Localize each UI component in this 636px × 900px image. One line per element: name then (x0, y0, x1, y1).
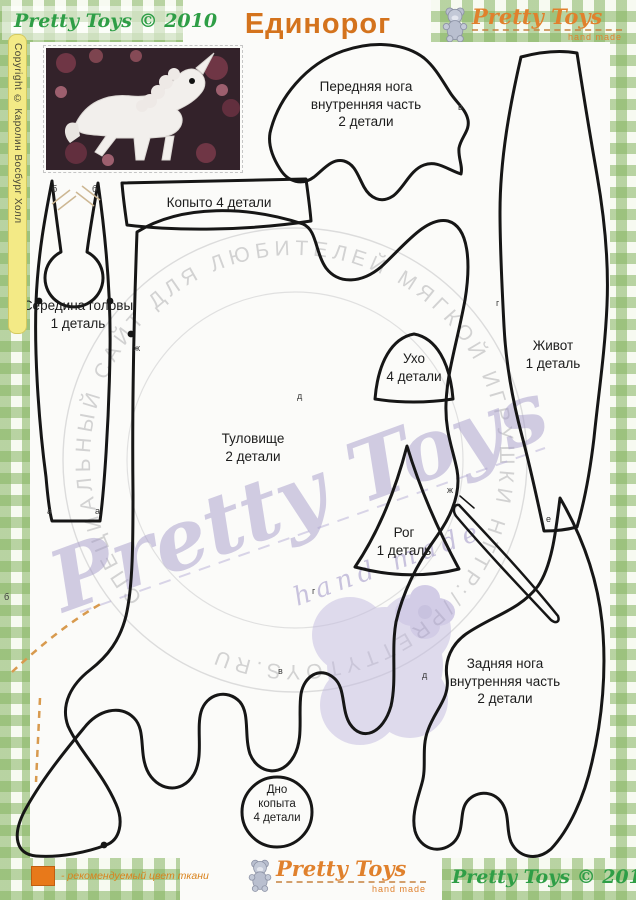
seam-letter: б (4, 592, 9, 602)
logo-bottom-center: Pretty Toys hand made (248, 858, 426, 894)
seam-letter: а (47, 506, 52, 516)
brand-dash-line (276, 881, 426, 883)
unicorn-photo-image (46, 48, 240, 170)
page-title: Единорог (245, 8, 391, 41)
recommended-fabric-dashes (12, 602, 104, 782)
fabric-color-legend: - рекомендуемый цвет ткани (31, 866, 209, 886)
seam-letter: в (278, 666, 283, 676)
label-front-leg: Передняя нога внутренняя часть 2 детали (311, 78, 421, 131)
copyright-text: Copyright © Каролин Восбург Холл (12, 43, 23, 333)
fabric-color-legend-text: - рекомендуемый цвет ткани (61, 870, 209, 882)
label-belly: Живот 1 деталь (526, 337, 581, 372)
seam-letter: ж (134, 343, 140, 353)
label-horn: Рог 1 деталь (377, 524, 432, 559)
belly-outline (500, 52, 607, 531)
brand-name: Pretty Toys (472, 6, 622, 27)
seam-letter: е (546, 514, 551, 524)
teddy-bear-icon (248, 858, 272, 892)
seam-letter: а (95, 506, 100, 516)
label-hoof-bottom: Дно копыта 4 детали (254, 784, 301, 825)
label-hoof: Копыто 4 детали (167, 194, 272, 212)
label-body: Туловище 2 детали (222, 430, 285, 465)
logo-top-right: Pretty Toys hand made (442, 6, 622, 42)
label-head-center: Середина головы 1 деталь (23, 297, 133, 332)
brand-name: Pretty Toys (276, 858, 426, 879)
head-center-outline (36, 181, 111, 521)
label-back-leg: Задняя нога внутренняя часть 2 детали (450, 655, 560, 708)
seam-letter: ж (447, 485, 453, 495)
logo-top-left: Pretty Toys © 2010 (14, 10, 217, 32)
marker-arrow-line (460, 496, 474, 508)
unicorn-photo (46, 48, 240, 170)
copyright-ribbon: Copyright © Каролин Восбург Холл (8, 34, 27, 334)
label-ear: Ухо 4 детали (386, 350, 441, 385)
seam-letter: д (297, 391, 302, 401)
seam-letter: г (496, 298, 499, 308)
seam-letter: д (422, 670, 427, 680)
brand-tagline: hand made (472, 32, 622, 42)
seam-letter: в (458, 102, 463, 112)
seam-letter: г (312, 586, 315, 596)
seam-letter: б (52, 184, 57, 194)
seam-dots (36, 298, 135, 849)
logo-bottom-right: Pretty Toys © 2010 (452, 866, 636, 888)
brand-tagline: hand made (276, 884, 426, 894)
seam-letter: б (92, 184, 97, 194)
brand-dash-line (472, 29, 622, 31)
teddy-bear-icon (442, 6, 468, 42)
fabric-color-swatch (31, 866, 55, 886)
